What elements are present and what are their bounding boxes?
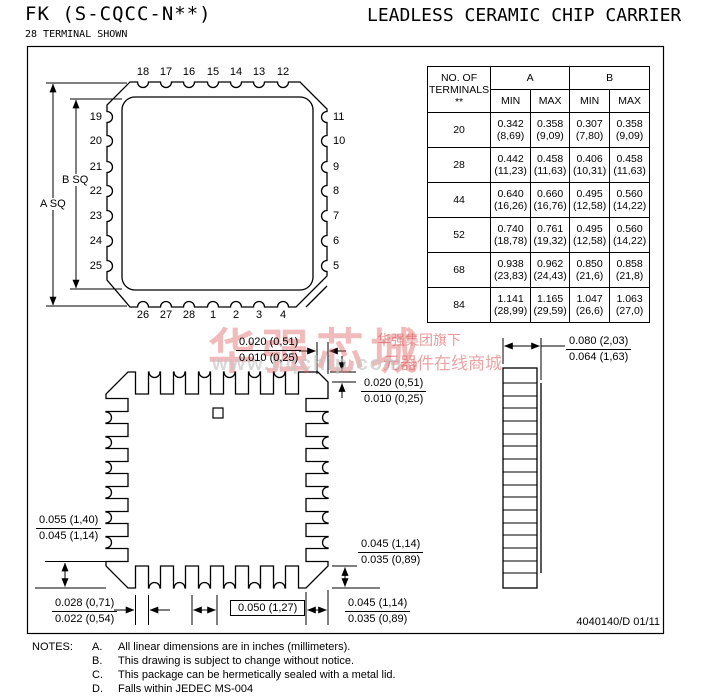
dim-value-min: 0.022 (0,54) bbox=[52, 612, 117, 626]
pin-number: 20 bbox=[84, 135, 102, 147]
dim-value-max: 0.080 (2,03) bbox=[566, 335, 631, 350]
dim-chamfer-top-h-arrows bbox=[299, 342, 346, 374]
note-letter: A. bbox=[92, 641, 102, 655]
pin-number: 14 bbox=[228, 66, 244, 78]
dim-terminal-width-arrows bbox=[114, 595, 170, 625]
dim-value-min: 0.045 (1,14) bbox=[36, 529, 101, 543]
note-text: All linear dimensions are in inches (mil… bbox=[118, 641, 350, 655]
bottom-view-outline bbox=[106, 372, 328, 588]
dim-corner-right-v-arrows bbox=[332, 566, 380, 588]
note-text: This drawing is subject to change withou… bbox=[118, 655, 354, 669]
page-title: FK (S-CQCC-N**) bbox=[25, 3, 212, 25]
dim-label-a-sq: A SQ bbox=[38, 198, 68, 210]
table-row: 28 0.442 (11,23) 0.458 (11,63) 0.406 (10… bbox=[428, 148, 650, 183]
dim-chamfer-top-v: 0.020 (0,51) 0.010 (0,25) bbox=[361, 377, 426, 406]
top-view-outline bbox=[107, 82, 327, 307]
cell-a-min: 1.141 (28,99) bbox=[491, 288, 531, 323]
pin-number: 15 bbox=[205, 66, 221, 78]
cell-b-max: 0.560 (14,22) bbox=[610, 218, 650, 253]
pin-number: 18 bbox=[135, 66, 151, 78]
pin-number: 6 bbox=[333, 235, 353, 247]
dim-chamfer-top-h: 0.020 (0,51) 0.010 (0,25) bbox=[236, 336, 301, 365]
pin-number: 23 bbox=[84, 210, 102, 222]
dim-value-min: 0.035 (0,89) bbox=[358, 553, 423, 567]
dim-corner-right-v: 0.045 (1,14) 0.035 (0,89) bbox=[358, 538, 423, 567]
dim-value-max: 0.020 (0,51) bbox=[236, 336, 301, 351]
table-row: 84 1.141 (28,99) 1.165 (29,59) 1.047 (26… bbox=[428, 288, 650, 323]
table-header-b: B bbox=[570, 67, 650, 90]
dim-value-min: 0.064 (1,63) bbox=[566, 350, 631, 364]
dim-lid-width: 0.080 (2,03) 0.064 (1,63) bbox=[566, 335, 631, 364]
top-view bbox=[107, 82, 327, 307]
top-view-body bbox=[122, 97, 313, 290]
pin-number: 8 bbox=[333, 185, 353, 197]
table-header-min: MIN bbox=[491, 90, 531, 113]
dim-lid-width-arrows bbox=[503, 338, 565, 380]
pin-number: 27 bbox=[158, 309, 174, 321]
pin1-index-mark bbox=[213, 408, 223, 418]
cell-a-max: 0.761 (19,32) bbox=[531, 218, 570, 253]
cell-b-min: 0.406 (10,31) bbox=[570, 148, 610, 183]
cell-a-max: 1.165 (29,59) bbox=[531, 288, 570, 323]
table-row: 68 0.938 (23,83) 0.962 (24,43) 0.850 (21… bbox=[428, 253, 650, 288]
pin-number: 7 bbox=[333, 210, 353, 222]
pin-number: 17 bbox=[158, 66, 174, 78]
note-letter: B. bbox=[92, 655, 102, 669]
cell-b-min: 0.850 (21,6) bbox=[570, 253, 610, 288]
cell-terminals: 52 bbox=[428, 218, 491, 253]
dim-corner-left: 0.055 (1,40) 0.045 (1,14) bbox=[36, 514, 101, 543]
pin-number: 25 bbox=[84, 260, 102, 272]
pin-number: 9 bbox=[333, 161, 353, 173]
pin-number: 19 bbox=[84, 111, 102, 123]
cell-b-max: 0.560 (14,22) bbox=[610, 183, 650, 218]
dim-corner-right-h: 0.045 (1,14) 0.035 (0,89) bbox=[345, 597, 410, 626]
cell-terminals: 84 bbox=[428, 288, 491, 323]
side-view-body bbox=[503, 368, 537, 588]
table-header-max: MAX bbox=[531, 90, 570, 113]
cell-b-max: 0.858 (21,8) bbox=[610, 253, 650, 288]
dim-chamfer-top-v-arrows bbox=[330, 356, 356, 398]
dim-value-min: 0.035 (0,89) bbox=[345, 612, 410, 626]
table-header-terminals: NO. OF TERMINALS ** bbox=[428, 67, 491, 113]
dim-value-max: 0.045 (1,14) bbox=[345, 597, 410, 612]
notes-label: NOTES: bbox=[32, 641, 73, 655]
pin-number: 28 bbox=[181, 309, 197, 321]
cell-a-min: 0.640 (16,26) bbox=[491, 183, 531, 218]
cell-terminals: 28 bbox=[428, 148, 491, 183]
dim-corner-right-h-arrows bbox=[306, 590, 328, 625]
side-view-terminal-lines bbox=[503, 383, 537, 573]
cell-a-max: 0.358 (9,09) bbox=[531, 113, 570, 148]
cell-a-min: 0.938 (23,83) bbox=[491, 253, 531, 288]
note-text: Falls within JEDEC MS-004 bbox=[118, 683, 253, 697]
table-row: 20 0.342 (8,69) 0.358 (9,09) 0.307 (7,80… bbox=[428, 113, 650, 148]
cell-a-max: 0.962 (24,43) bbox=[531, 253, 570, 288]
table-row: 52 0.740 (18,78) 0.761 (19,32) 0.495 (12… bbox=[428, 218, 650, 253]
pin-number: 2 bbox=[228, 309, 244, 321]
table-row: 44 0.640 (16,26) 0.660 (16,76) 0.495 (12… bbox=[428, 183, 650, 218]
cell-terminals: 68 bbox=[428, 253, 491, 288]
dim-value-max: 0.045 (1,14) bbox=[358, 538, 423, 553]
cell-terminals: 44 bbox=[428, 183, 491, 218]
bottom-view bbox=[106, 372, 328, 588]
pin-number: 5 bbox=[333, 260, 353, 272]
cell-a-max: 0.660 (16,76) bbox=[531, 183, 570, 218]
cell-b-min: 0.495 (12,58) bbox=[570, 183, 610, 218]
pin-number: 1 bbox=[205, 309, 221, 321]
cell-b-max: 1.063 (27,0) bbox=[610, 288, 650, 323]
pin-number: 11 bbox=[333, 111, 353, 123]
note-letter: D. bbox=[92, 683, 103, 697]
table-header-max: MAX bbox=[610, 90, 650, 113]
terminal-dimension-table: NO. OF TERMINALS ** A B MIN MAX MIN MAX … bbox=[427, 66, 650, 323]
pin-number: 10 bbox=[333, 135, 353, 147]
dim-value-max: 0.020 (0,51) bbox=[361, 377, 426, 392]
pin-number: 24 bbox=[84, 235, 102, 247]
cell-terminals: 20 bbox=[428, 113, 491, 148]
dim-terminal-width: 0.028 (0,71) 0.022 (0,54) bbox=[52, 597, 117, 626]
cell-b-min: 0.495 (12,58) bbox=[570, 218, 610, 253]
cell-b-min: 0.307 (7,80) bbox=[570, 113, 610, 148]
cell-a-min: 0.442 (11,23) bbox=[491, 148, 531, 183]
page-subtitle: 28 TERMINAL SHOWN bbox=[25, 29, 127, 40]
cell-b-max: 0.358 (9,09) bbox=[610, 113, 650, 148]
pin-number: 21 bbox=[84, 161, 102, 173]
dim-value-max: 0.028 (0,71) bbox=[52, 597, 117, 612]
cell-b-min: 1.047 (26,6) bbox=[570, 288, 610, 323]
pin-number: 22 bbox=[84, 185, 102, 197]
drawing-page: { "header": { "title_left": "FK (S-CQCC-… bbox=[0, 0, 717, 700]
side-view bbox=[503, 368, 541, 588]
pin-number: 12 bbox=[275, 66, 291, 78]
cell-a-min: 0.740 (18,78) bbox=[491, 218, 531, 253]
dim-value-min: 0.010 (0,25) bbox=[236, 351, 301, 365]
index-corner-line bbox=[306, 286, 327, 307]
cell-a-min: 0.342 (8,69) bbox=[491, 113, 531, 148]
pin-number: 4 bbox=[275, 309, 291, 321]
page-title-right: LEADLESS CERAMIC CHIP CARRIER bbox=[367, 5, 681, 26]
note-text: This package can be hermetically sealed … bbox=[118, 669, 396, 683]
note-letter: C. bbox=[92, 669, 103, 683]
table-header-min: MIN bbox=[570, 90, 610, 113]
table-header-a: A bbox=[491, 67, 570, 90]
pin-number: 16 bbox=[181, 66, 197, 78]
document-number: 4040140/D 01/11 bbox=[560, 616, 660, 628]
dim-pitch: 0.050 (1,27) bbox=[230, 600, 305, 616]
cell-b-max: 0.458 (11,63) bbox=[610, 148, 650, 183]
dim-pitch-arrows bbox=[192, 595, 217, 625]
pin-number: 3 bbox=[251, 309, 267, 321]
dim-value-min: 0.010 (0,25) bbox=[361, 392, 426, 406]
pin-number: 13 bbox=[251, 66, 267, 78]
cell-a-max: 0.458 (11,63) bbox=[531, 148, 570, 183]
dim-value-max: 0.055 (1,40) bbox=[36, 514, 101, 529]
pin-number: 26 bbox=[135, 309, 151, 321]
